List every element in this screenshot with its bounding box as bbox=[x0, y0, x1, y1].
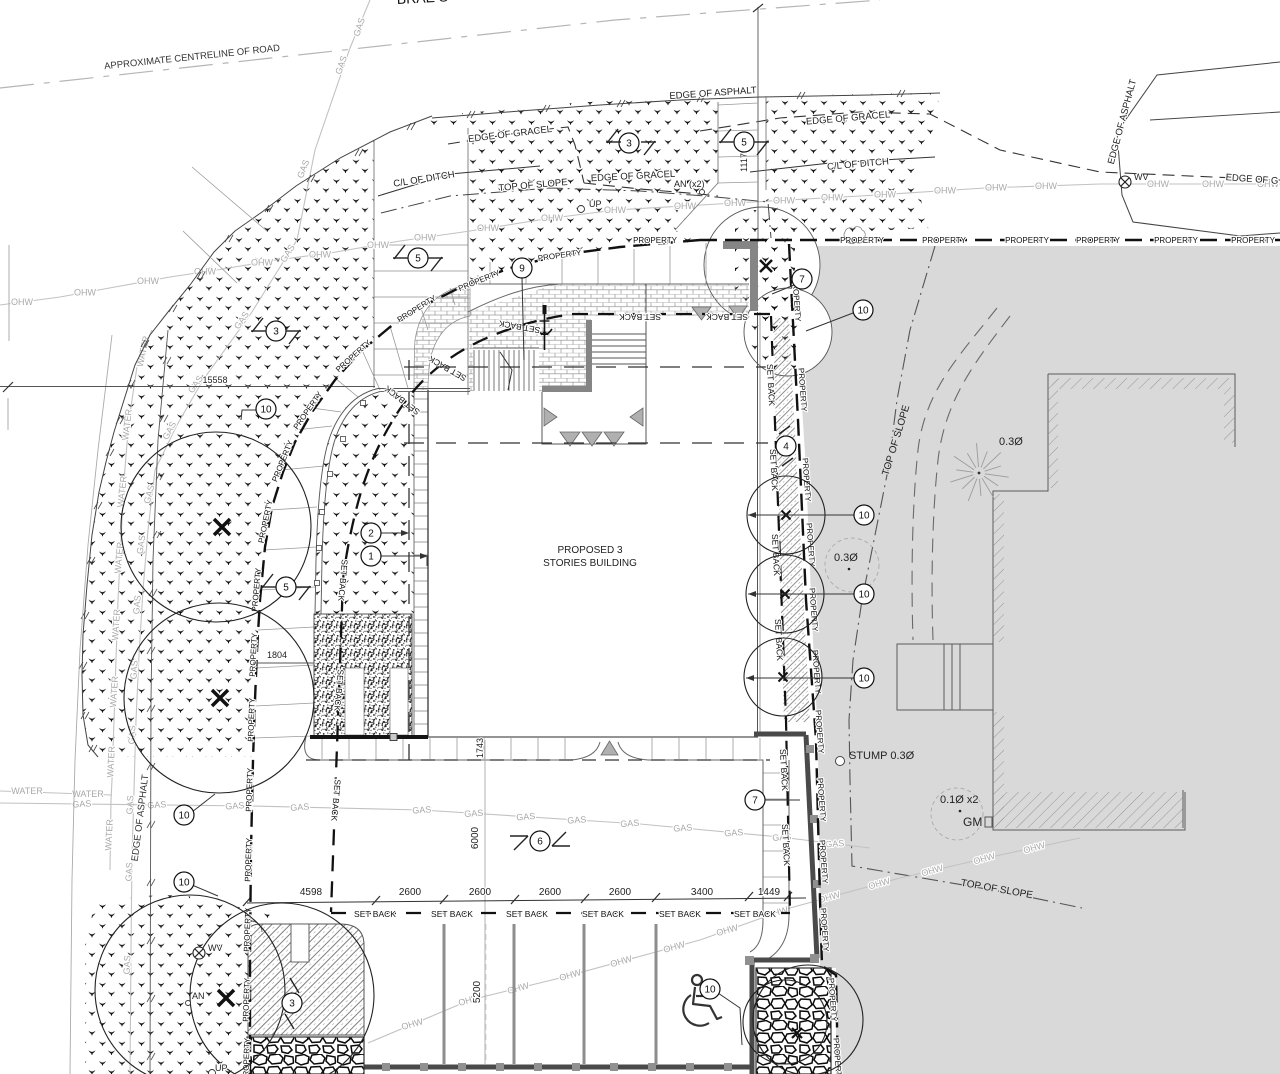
svg-text:WATER: WATER bbox=[72, 789, 104, 799]
svg-text:10: 10 bbox=[858, 674, 870, 685]
svg-text:OHW: OHW bbox=[1147, 179, 1170, 189]
svg-text:OHW: OHW bbox=[604, 205, 627, 215]
svg-text:UP: UP bbox=[215, 1063, 228, 1073]
svg-text:STORIES BUILDING: STORIES BUILDING bbox=[543, 558, 637, 569]
svg-text:1449: 1449 bbox=[758, 887, 781, 898]
svg-text:2600: 2600 bbox=[469, 887, 492, 898]
svg-text:GAS: GAS bbox=[131, 595, 143, 615]
svg-text:2600: 2600 bbox=[539, 887, 562, 898]
svg-text:OHW: OHW bbox=[874, 189, 897, 199]
svg-text:5: 5 bbox=[415, 254, 421, 265]
svg-text:SET BACK: SET BACK bbox=[706, 312, 748, 322]
svg-text:2: 2 bbox=[368, 529, 374, 540]
svg-text:2600: 2600 bbox=[399, 887, 422, 898]
svg-text:7: 7 bbox=[799, 275, 805, 286]
svg-text:15558: 15558 bbox=[202, 375, 227, 385]
svg-text:OHW: OHW bbox=[251, 257, 274, 267]
svg-text:OHW: OHW bbox=[821, 193, 844, 203]
svg-text:WATER: WATER bbox=[105, 745, 117, 777]
svg-text:SET BACK: SET BACK bbox=[506, 909, 548, 919]
svg-text:OHW: OHW bbox=[11, 297, 34, 307]
svg-text:GAS: GAS bbox=[724, 827, 744, 838]
svg-text:PROPERTY: PROPERTY bbox=[1076, 236, 1121, 245]
svg-text:0.3Ø: 0.3Ø bbox=[834, 552, 858, 564]
svg-text:SET BACK: SET BACK bbox=[659, 909, 701, 919]
svg-text:GAS: GAS bbox=[464, 808, 484, 819]
svg-text:PROPOSED 3: PROPOSED 3 bbox=[557, 545, 622, 556]
svg-text:OHW: OHW bbox=[309, 249, 332, 259]
svg-text:3: 3 bbox=[626, 139, 632, 150]
svg-text:STUMP 0.3Ø: STUMP 0.3Ø bbox=[849, 750, 915, 762]
svg-text:OHW: OHW bbox=[367, 240, 390, 250]
svg-text:7: 7 bbox=[752, 796, 758, 807]
svg-text:OHW: OHW bbox=[934, 186, 957, 196]
svg-text:PROPERTY: PROPERTY bbox=[243, 837, 254, 882]
svg-text:GAS: GAS bbox=[673, 822, 693, 833]
svg-text:9: 9 bbox=[519, 264, 525, 275]
svg-text:UP: UP bbox=[589, 199, 602, 209]
svg-text:WATER: WATER bbox=[103, 818, 115, 850]
svg-text:GAS: GAS bbox=[72, 798, 92, 809]
svg-text:GAS: GAS bbox=[516, 811, 536, 822]
svg-text:GM: GM bbox=[963, 815, 982, 829]
svg-text:5: 5 bbox=[741, 138, 747, 149]
svg-text:OHW: OHW bbox=[773, 195, 796, 205]
svg-text:PROPERTY: PROPERTY bbox=[246, 697, 257, 742]
svg-text:WV: WV bbox=[208, 943, 223, 953]
svg-text:GAS: GAS bbox=[124, 862, 135, 882]
svg-text:10: 10 bbox=[260, 405, 272, 416]
svg-text:OHW: OHW bbox=[137, 276, 160, 286]
svg-text:1: 1 bbox=[368, 552, 374, 563]
svg-text:6000: 6000 bbox=[470, 826, 481, 849]
svg-text:GAS: GAS bbox=[412, 804, 432, 815]
svg-text:AN: AN bbox=[192, 991, 205, 1001]
svg-text:GAS: GAS bbox=[620, 818, 640, 829]
svg-text:GAS: GAS bbox=[225, 800, 245, 811]
svg-text:SET BACK: SET BACK bbox=[582, 909, 624, 919]
svg-text:PROPERTY: PROPERTY bbox=[922, 236, 967, 245]
svg-text:OHW: OHW bbox=[985, 183, 1008, 193]
svg-text:AN (x2): AN (x2) bbox=[674, 179, 705, 189]
svg-text:OHW: OHW bbox=[674, 201, 697, 211]
svg-text:PROPERTY: PROPERTY bbox=[241, 977, 252, 1022]
svg-text:PROPERTY: PROPERTY bbox=[1154, 236, 1199, 245]
svg-text:PROPERTY: PROPERTY bbox=[1005, 236, 1050, 245]
svg-text:OHW: OHW bbox=[414, 232, 437, 242]
svg-text:OHW: OHW bbox=[1035, 181, 1058, 191]
svg-text:SET BACK: SET BACK bbox=[619, 312, 661, 322]
svg-text:OHW: OHW bbox=[477, 223, 500, 233]
svg-text:4: 4 bbox=[783, 442, 789, 453]
svg-text:GAS: GAS bbox=[290, 802, 310, 813]
svg-text:6: 6 bbox=[537, 837, 543, 848]
svg-text:3400: 3400 bbox=[691, 887, 714, 898]
svg-text:WATER: WATER bbox=[11, 786, 43, 796]
svg-text:5200: 5200 bbox=[472, 980, 483, 1003]
svg-text:GAS: GAS bbox=[147, 799, 167, 810]
svg-text:2600: 2600 bbox=[609, 887, 632, 898]
svg-text:1804: 1804 bbox=[267, 650, 287, 660]
svg-text:10: 10 bbox=[858, 511, 870, 522]
svg-text:3: 3 bbox=[289, 999, 295, 1010]
svg-text:0.1Ø x2: 0.1Ø x2 bbox=[940, 794, 979, 806]
svg-text:10: 10 bbox=[857, 306, 869, 317]
svg-text:SET BACK: SET BACK bbox=[431, 909, 473, 919]
svg-text:3: 3 bbox=[273, 327, 279, 338]
svg-text:10: 10 bbox=[178, 811, 190, 822]
svg-text:SET BACK: SET BACK bbox=[354, 909, 396, 919]
svg-text:10: 10 bbox=[858, 590, 870, 601]
svg-text:OHW: OHW bbox=[541, 213, 564, 223]
svg-text:GAS: GAS bbox=[128, 660, 139, 680]
svg-text:OHW: OHW bbox=[74, 287, 97, 297]
svg-text:PROPERTY: PROPERTY bbox=[633, 236, 678, 245]
svg-text:SET BACK: SET BACK bbox=[734, 909, 776, 919]
svg-text:10: 10 bbox=[178, 878, 190, 889]
svg-text:OHW: OHW bbox=[1202, 179, 1225, 189]
svg-text:GAS: GAS bbox=[122, 955, 133, 975]
svg-text:0.3Ø: 0.3Ø bbox=[999, 436, 1023, 448]
svg-text:GAS: GAS bbox=[567, 814, 587, 825]
svg-text:5: 5 bbox=[283, 583, 289, 594]
svg-text:4598: 4598 bbox=[300, 887, 323, 898]
svg-text:PROPERTY: PROPERTY bbox=[1231, 236, 1276, 245]
svg-text:10: 10 bbox=[704, 985, 716, 996]
svg-text:1743: 1743 bbox=[475, 738, 485, 758]
